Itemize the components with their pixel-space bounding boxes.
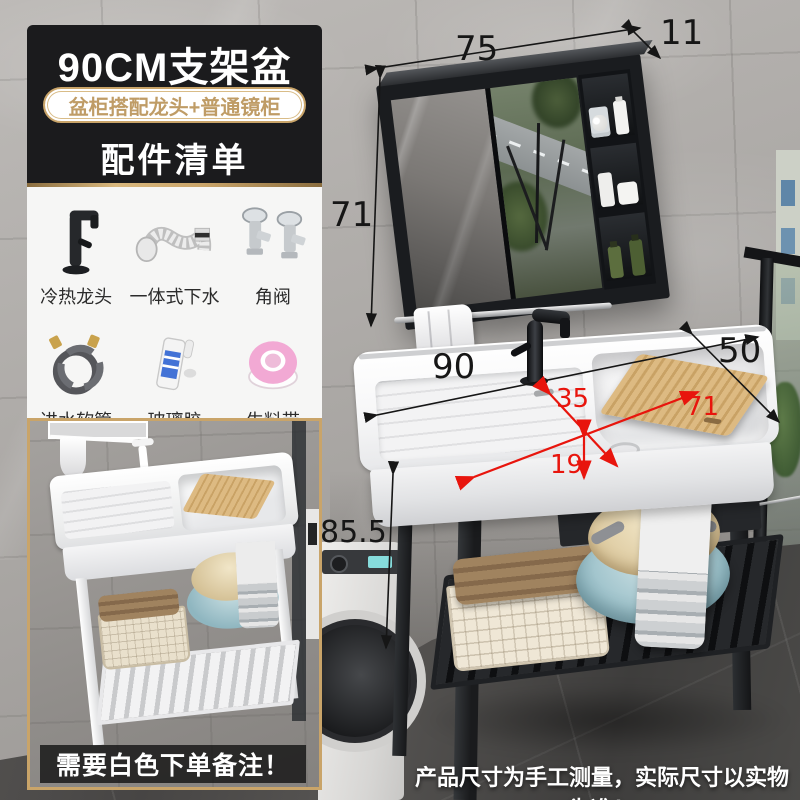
accessory-item: 一体式下水 <box>125 191 223 315</box>
glass-glue-icon <box>136 327 212 407</box>
inlet-hose-icon <box>36 327 116 407</box>
subtitle-pill: 盆柜搭配龙头+普通镜柜 <box>43 87 306 123</box>
dim-label-basin-diag: 71 <box>686 394 719 420</box>
inset-washer-display <box>308 523 317 545</box>
inset-white-sink <box>48 443 322 758</box>
dim-label-sink-width: 90 <box>432 350 475 384</box>
accessory-label: 冷热龙头 <box>40 283 112 309</box>
dim-label-mirror-width: 75 <box>455 32 498 66</box>
dim-label-stand-height: 85.5 <box>320 518 387 548</box>
accessory-item: 冷热龙头 <box>27 191 125 315</box>
dim-label-basin-width: 35 <box>556 386 589 412</box>
dim-label-mirror-height: 71 <box>330 198 373 232</box>
accessory-label: 一体式下水 <box>129 283 219 309</box>
dim-line-mirror-depth <box>634 32 660 58</box>
info-panel-black: 90CM支架盆 盆柜搭配龙头+普通镜柜 配件清单 <box>27 25 322 183</box>
dim-line-stand-height <box>386 474 393 648</box>
dim-line-mirror-width <box>378 28 640 68</box>
dim-label-sink-depth: 50 <box>718 334 761 368</box>
inset-note-banner: 需要白色下单备注！ <box>40 745 306 783</box>
inset-note-text: 需要白色下单备注！ <box>56 746 290 782</box>
dim-label-basin-depth: 19 <box>550 452 583 478</box>
black-faucet-icon <box>40 201 112 283</box>
angle-valve-icon <box>235 201 311 283</box>
thread-seal-tape-icon <box>235 327 311 407</box>
accessory-item: 角阀 <box>224 191 322 315</box>
subtitle-pill-text: 盆柜搭配龙头+普通镜柜 <box>69 91 281 120</box>
dim-label-mirror-depth: 11 <box>660 16 703 50</box>
accessories-panel: 冷热龙头 一体式下水 <box>27 187 322 439</box>
accessories-header: 配件清单 <box>27 133 322 182</box>
product-image: 75 11 71 90 50 85.5 35 71 19 90CM支架盆 盆柜搭… <box>0 0 800 800</box>
inset-gray-towel <box>235 541 279 629</box>
white-variant-inset: 需要白色下单备注！ <box>27 418 322 790</box>
disclaimer: 产品尺寸为手工测量，实际尺寸以实物为准！ <box>408 760 796 800</box>
drain-pipe-icon <box>131 201 217 283</box>
page-title: 90CM支架盆 <box>27 35 322 93</box>
accessory-label: 角阀 <box>255 283 291 309</box>
